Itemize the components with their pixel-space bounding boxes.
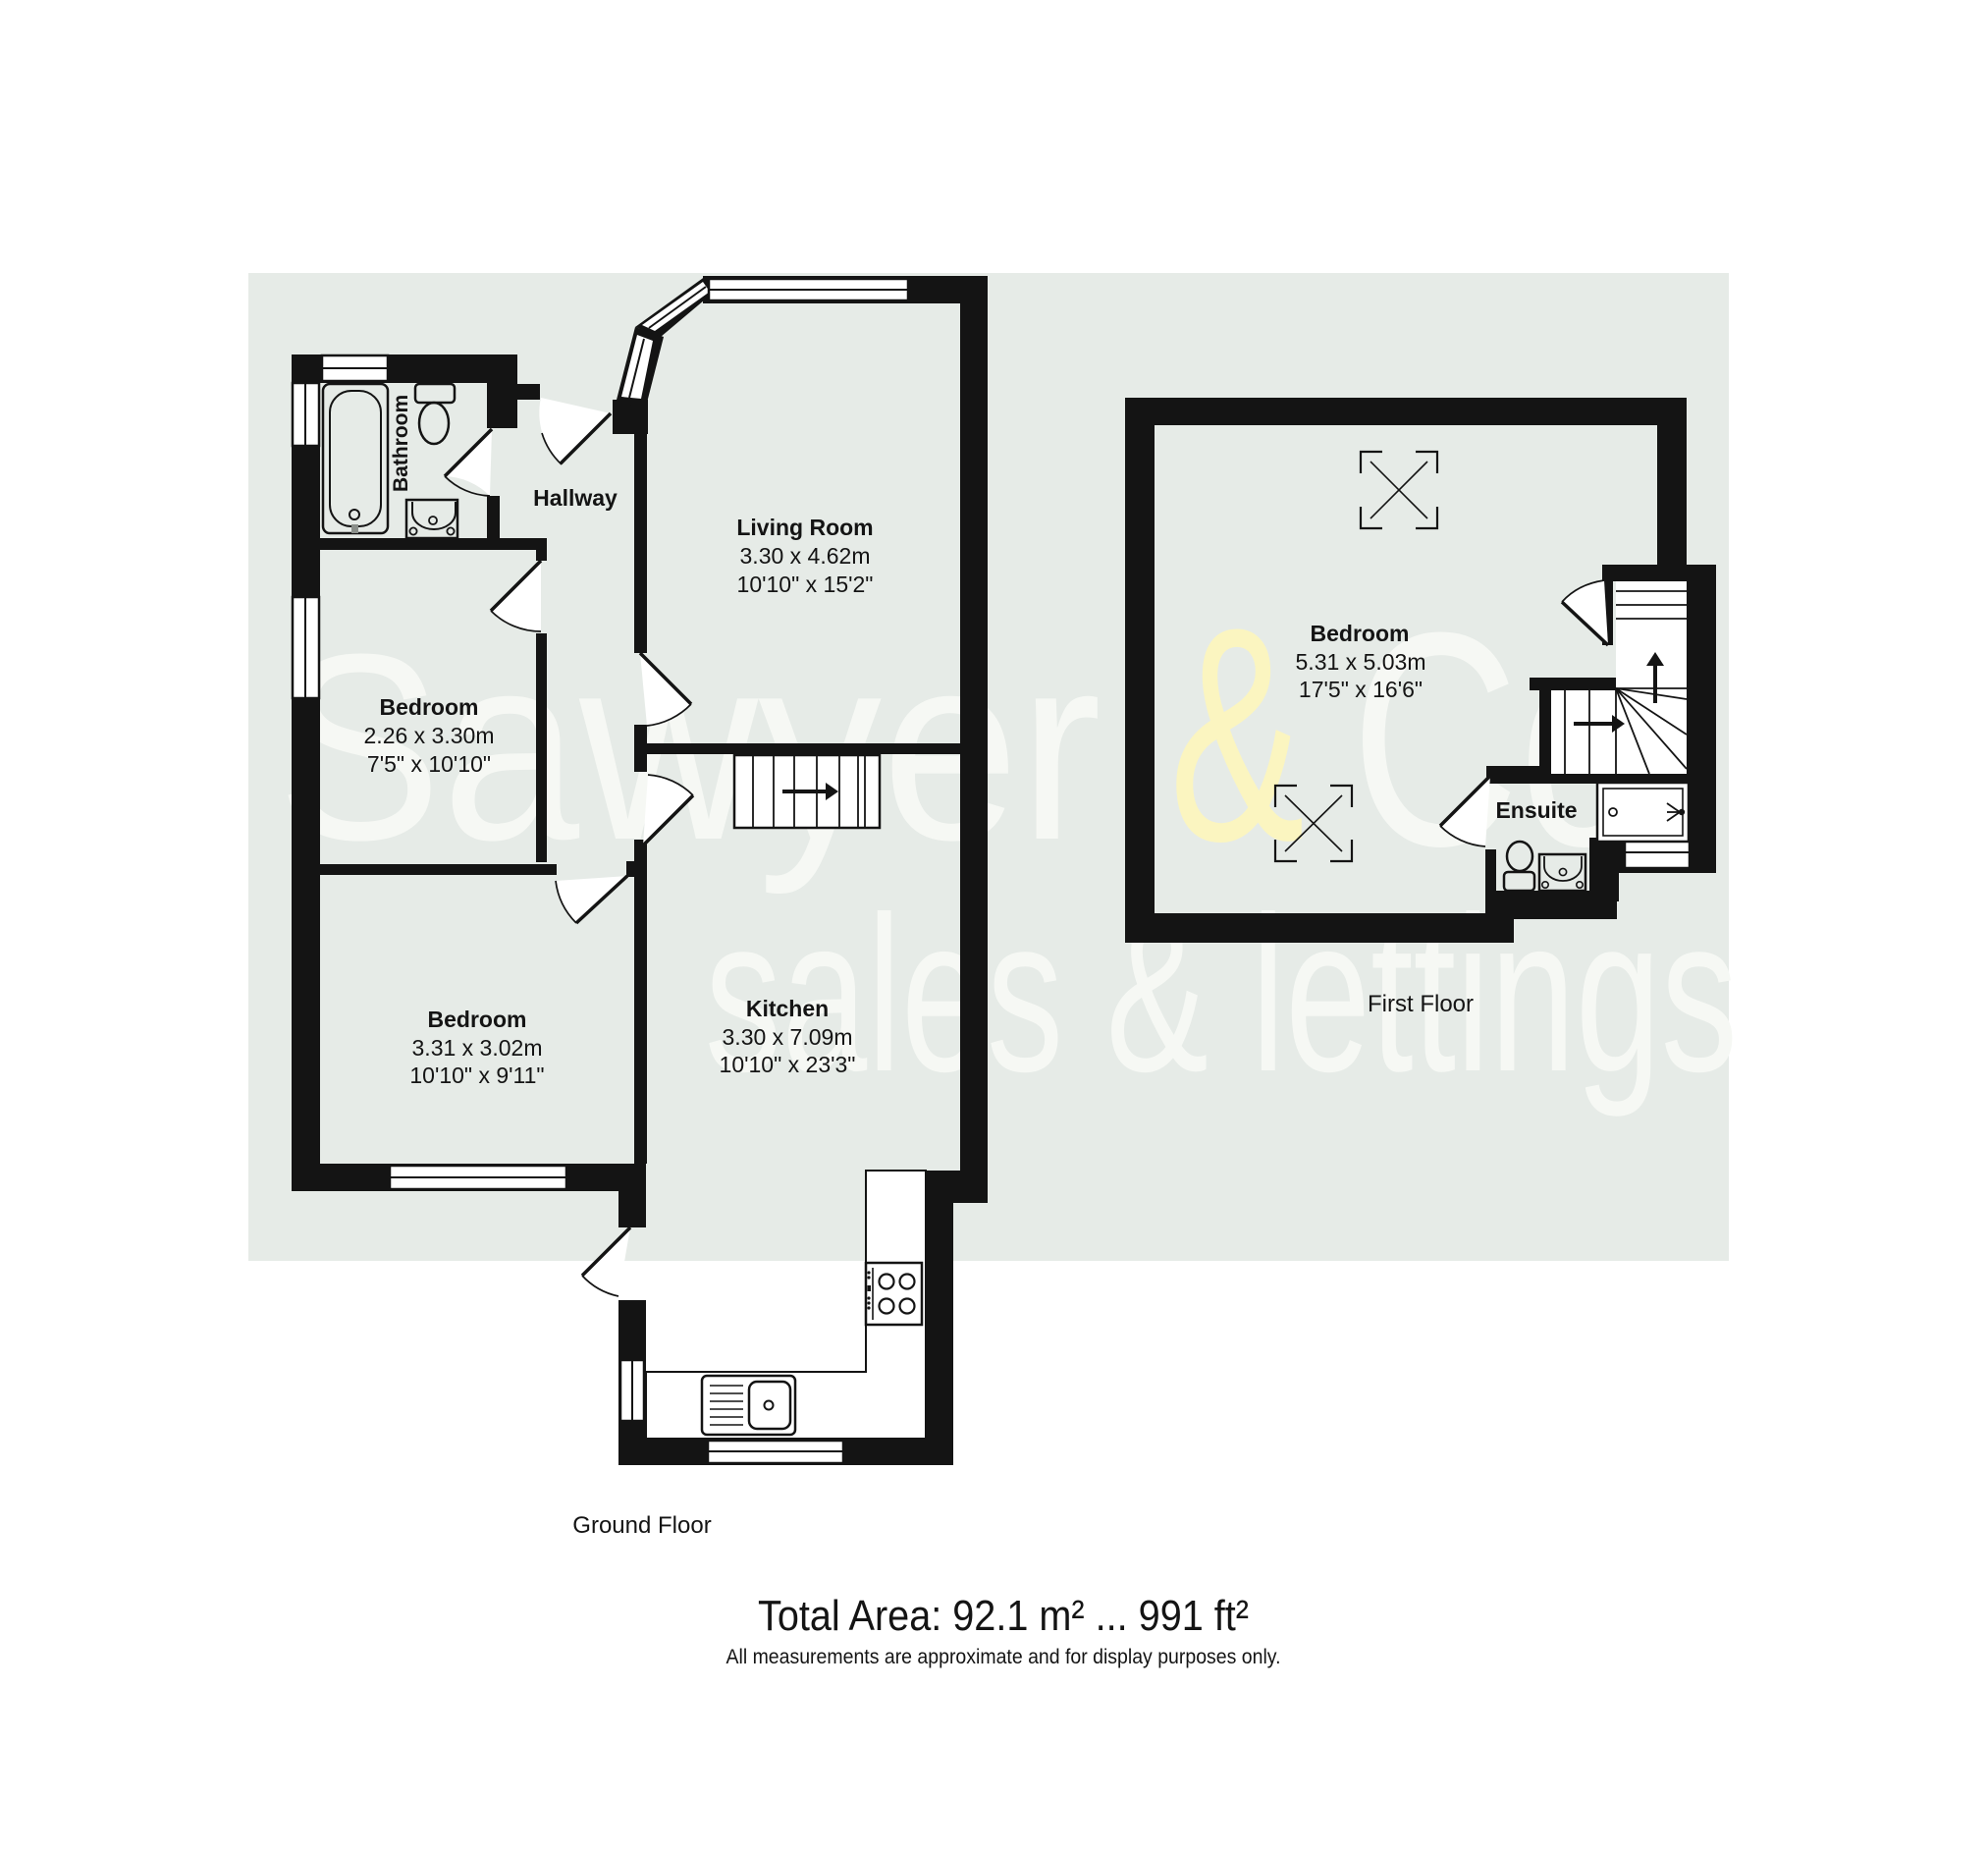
svg-text:Total Area: 92.1 m² ... 991 ft: Total Area: 92.1 m² ... 991 ft² [758, 1592, 1249, 1640]
svg-text:All measurements are approxima: All measurements are approximate and for… [726, 1646, 1281, 1668]
svg-text:Bedroom: Bedroom [428, 1007, 527, 1032]
svg-text:&: & [1169, 564, 1305, 904]
svg-text:10'10" x 9'11": 10'10" x 9'11" [409, 1063, 544, 1088]
svg-text:First Floor: First Floor [1368, 991, 1474, 1017]
svg-text:3.30 x 4.62m: 3.30 x 4.62m [740, 543, 871, 569]
svg-text:Bathroom: Bathroom [390, 395, 412, 492]
svg-text:10'10" x 23'3": 10'10" x 23'3" [720, 1052, 856, 1077]
svg-text:3.31 x 3.02m: 3.31 x 3.02m [412, 1035, 543, 1061]
svg-text:10'10" x 15'2": 10'10" x 15'2" [737, 572, 874, 597]
svg-text:Hallway: Hallway [533, 485, 618, 511]
svg-text:Kitchen: Kitchen [746, 996, 829, 1021]
svg-text:Bedroom: Bedroom [380, 694, 479, 720]
svg-text:17'5" x 16'6": 17'5" x 16'6" [1299, 677, 1423, 702]
svg-text:Ensuite: Ensuite [1495, 797, 1577, 823]
svg-text:7'5" x 10'10": 7'5" x 10'10" [367, 751, 491, 777]
svg-text:Living Room: Living Room [736, 515, 873, 540]
svg-text:Ground Floor: Ground Floor [572, 1512, 711, 1539]
svg-text:3.30 x 7.09m: 3.30 x 7.09m [723, 1024, 853, 1050]
svg-text:2.26 x 3.30m: 2.26 x 3.30m [364, 723, 495, 748]
svg-text:Bedroom: Bedroom [1311, 621, 1410, 646]
svg-text:5.31 x 5.03m: 5.31 x 5.03m [1296, 649, 1426, 675]
